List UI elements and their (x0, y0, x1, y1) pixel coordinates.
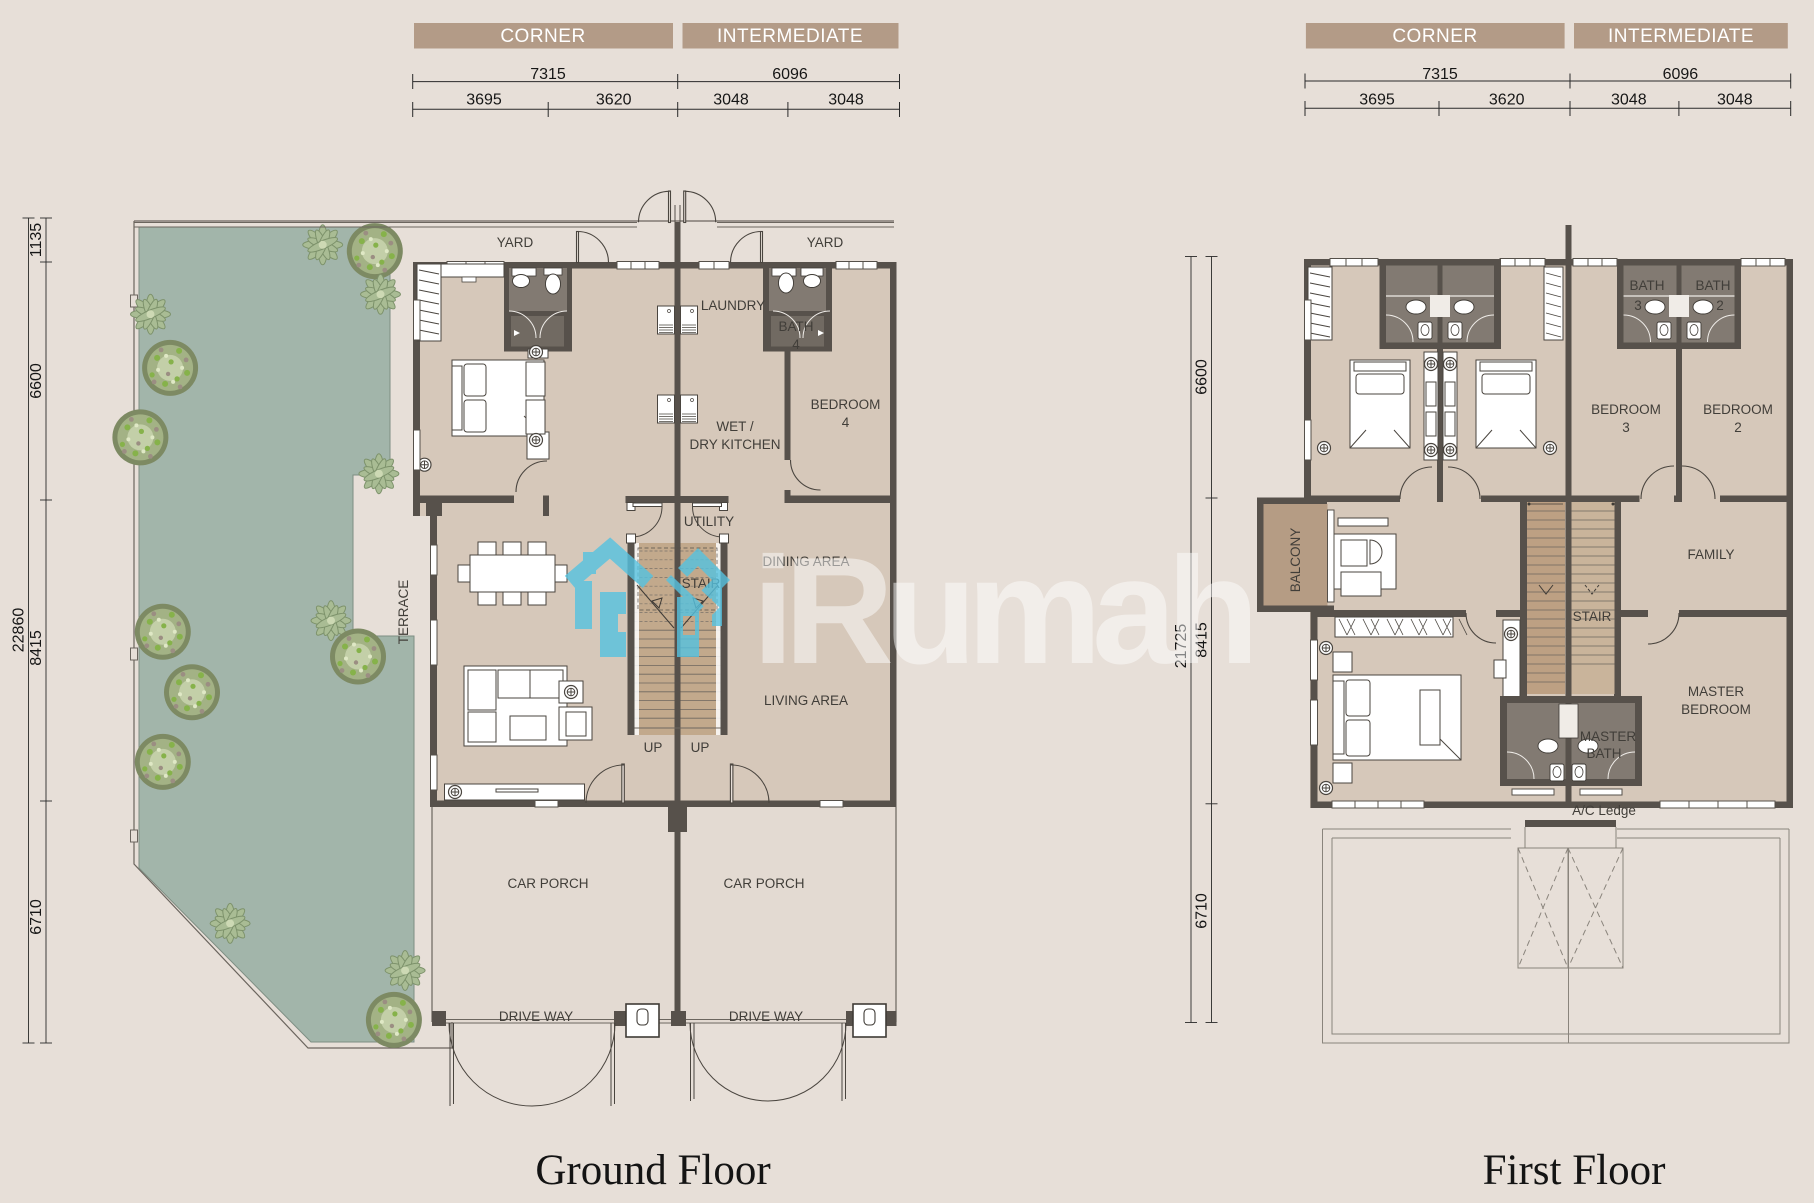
svg-text:CORNER: CORNER (500, 26, 585, 47)
svg-text:UTILITY: UTILITY (684, 514, 734, 529)
svg-text:DRIVE WAY: DRIVE WAY (499, 1009, 573, 1024)
svg-text:6600: 6600 (1194, 359, 1211, 395)
svg-text:6710: 6710 (28, 899, 45, 935)
svg-text:FAMILY: FAMILY (1687, 547, 1734, 562)
svg-text:DRY KITCHEN: DRY KITCHEN (689, 437, 780, 452)
svg-text:6710: 6710 (1194, 893, 1211, 929)
svg-text:BATH: BATH (778, 319, 813, 334)
svg-text:BEDROOM: BEDROOM (1703, 402, 1773, 417)
svg-text:BATH: BATH (1629, 278, 1664, 293)
svg-text:LAUNDRY: LAUNDRY (701, 298, 765, 313)
svg-text:2: 2 (1716, 298, 1724, 313)
svg-text:CAR PORCH: CAR PORCH (723, 876, 804, 891)
svg-text:CAR PORCH: CAR PORCH (507, 876, 588, 891)
svg-text:8415: 8415 (28, 630, 45, 666)
svg-text:BEDROOM: BEDROOM (1681, 702, 1751, 717)
svg-text:6096: 6096 (1663, 66, 1699, 83)
svg-text:UP: UP (644, 740, 663, 755)
svg-text:2: 2 (1734, 420, 1742, 435)
svg-text:3048: 3048 (1611, 92, 1647, 109)
svg-text:3620: 3620 (596, 92, 632, 109)
svg-text:6096: 6096 (772, 66, 808, 83)
svg-text:1135: 1135 (28, 223, 45, 258)
svg-text:UP: UP (691, 740, 710, 755)
svg-text:7315: 7315 (1422, 66, 1458, 83)
svg-text:MASTER: MASTER (1580, 729, 1637, 744)
svg-text:3048: 3048 (713, 92, 749, 109)
svg-text:First Floor: First Floor (1483, 1147, 1666, 1194)
svg-text:BEDROOM: BEDROOM (1591, 402, 1661, 417)
svg-text:TERRACE: TERRACE (396, 580, 411, 645)
svg-text:3695: 3695 (1359, 92, 1395, 109)
svg-text:WET /: WET / (716, 419, 753, 434)
svg-text:6600: 6600 (28, 363, 45, 399)
svg-text:DRIVE WAY: DRIVE WAY (729, 1009, 803, 1024)
svg-text:4: 4 (842, 415, 850, 430)
svg-text:BATH: BATH (1586, 746, 1621, 761)
svg-text:INTERMEDIATE: INTERMEDIATE (1608, 26, 1754, 47)
svg-text:CORNER: CORNER (1392, 26, 1477, 47)
svg-text:3048: 3048 (828, 92, 864, 109)
svg-text:4: 4 (792, 337, 800, 352)
svg-text:3: 3 (1634, 298, 1642, 313)
svg-text:3620: 3620 (1489, 92, 1525, 109)
svg-text:22860: 22860 (11, 608, 28, 653)
svg-text:MASTER: MASTER (1688, 684, 1745, 699)
svg-text:7315: 7315 (530, 66, 566, 83)
svg-text:BALCONY: BALCONY (1288, 528, 1303, 593)
svg-text:BEDROOM: BEDROOM (811, 397, 881, 412)
svg-text:A/C Ledge: A/C Ledge (1572, 803, 1636, 818)
svg-text:3695: 3695 (466, 92, 502, 109)
svg-text:STAIR: STAIR (1573, 609, 1612, 624)
svg-text:Ground Floor: Ground Floor (535, 1147, 770, 1194)
svg-text:BATH: BATH (1695, 278, 1730, 293)
svg-text:YARD: YARD (497, 235, 534, 250)
svg-text:YARD: YARD (807, 235, 844, 250)
svg-text:3048: 3048 (1717, 92, 1753, 109)
svg-text:3: 3 (1622, 420, 1630, 435)
svg-text:INTERMEDIATE: INTERMEDIATE (717, 26, 863, 47)
svg-text:iRumah: iRumah (752, 526, 1251, 696)
